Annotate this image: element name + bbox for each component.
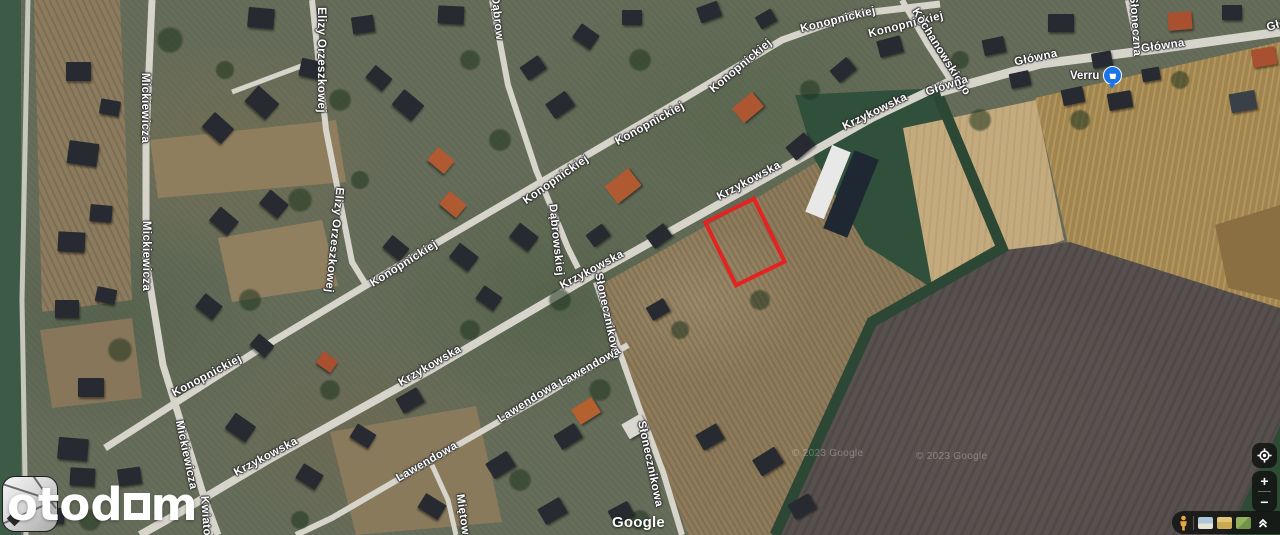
street-label-krzykowska: Krzykowska [558, 248, 626, 292]
poi-verru[interactable]: Verru [1070, 66, 1122, 85]
otodom-wordmark: otodm [7, 480, 197, 530]
collapse-chevrons-icon[interactable] [1257, 517, 1269, 529]
zoom-out-button[interactable]: − [1252, 492, 1277, 512]
street-label-elizy-orzeszkowej: Elizy Orzeszkowej [315, 7, 327, 113]
street-label-konopnickiej: Konopnickiej [368, 239, 440, 290]
street-label-główna: Główna [1013, 48, 1058, 69]
street-label-lawendowa: Lawendowa [557, 345, 623, 390]
street-label-konopnickiej: Konopnickiej [613, 100, 686, 148]
street-label-elizy-orzeszkowej: Elizy Orzeszkowej [322, 187, 345, 294]
zoom-in-button[interactable]: + [1252, 471, 1277, 491]
wordmark-post: m [151, 478, 198, 531]
street-label-dąbrow: Dąbrow [489, 0, 506, 41]
street-label-główna: Główna [1265, 10, 1280, 34]
wordmark-pre: otod [7, 478, 123, 531]
street-label-mickiewicza: Mickiewicza [140, 221, 152, 291]
street-label-krzykowska: Krzykowska [396, 343, 463, 389]
otodom-logo: otodm [0, 472, 260, 535]
street-label-słonecznikowa: Słonecznikowa [635, 420, 665, 508]
shopping-bag-glyph [1109, 72, 1116, 79]
street-label-krzykowska: Krzykowska [841, 91, 910, 133]
layer-thumbnail-2[interactable] [1217, 517, 1232, 529]
copyright-watermark: © 2023 Google [792, 448, 863, 459]
pegman-icon[interactable] [1178, 515, 1189, 531]
street-label-konopnickiej: Konopnickiej [521, 153, 591, 207]
zoom-control: + − [1252, 471, 1277, 512]
streetview-layers-bar [1172, 511, 1280, 534]
street-label-konopnickiej: Konopnickiej [170, 353, 244, 400]
street-label-miętowa: Miętowa [454, 493, 473, 535]
street-label-główna: Główna [1140, 37, 1185, 55]
layer-thumbnail-1[interactable] [1198, 517, 1213, 529]
street-label-konopnickiej: Konopnickiej [799, 5, 877, 35]
street-label-lawendowa: Lawendowa [394, 440, 460, 485]
my-location-button[interactable] [1252, 443, 1277, 468]
google-logo: Google [612, 514, 665, 531]
my-location-icon [1257, 448, 1272, 463]
street-label-konopnickiej: Konopnickiej [708, 37, 775, 96]
store-pin-icon[interactable] [1103, 66, 1122, 85]
layer-thumbnail-3[interactable] [1236, 517, 1251, 529]
street-label-krzykowska: Krzykowska [715, 159, 783, 203]
street-label-lawendowa: Lawendowa [496, 379, 561, 426]
street-label-mickiewicza: Mickiewicza [139, 73, 151, 143]
copyright-watermark: © 2023 Google [916, 451, 987, 462]
street-label-słoneczna: Słoneczna [1127, 0, 1143, 57]
satellite-map[interactable]: MickiewiczaMickiewiczaMickiewiczaElizy O… [0, 0, 1280, 535]
wordmark-square-glyph [124, 493, 150, 520]
poi-verru-label: Verru [1070, 70, 1099, 82]
street-label-dąbrowskiej: Dąbrowskiej [546, 203, 565, 276]
bar-divider [1193, 516, 1194, 530]
